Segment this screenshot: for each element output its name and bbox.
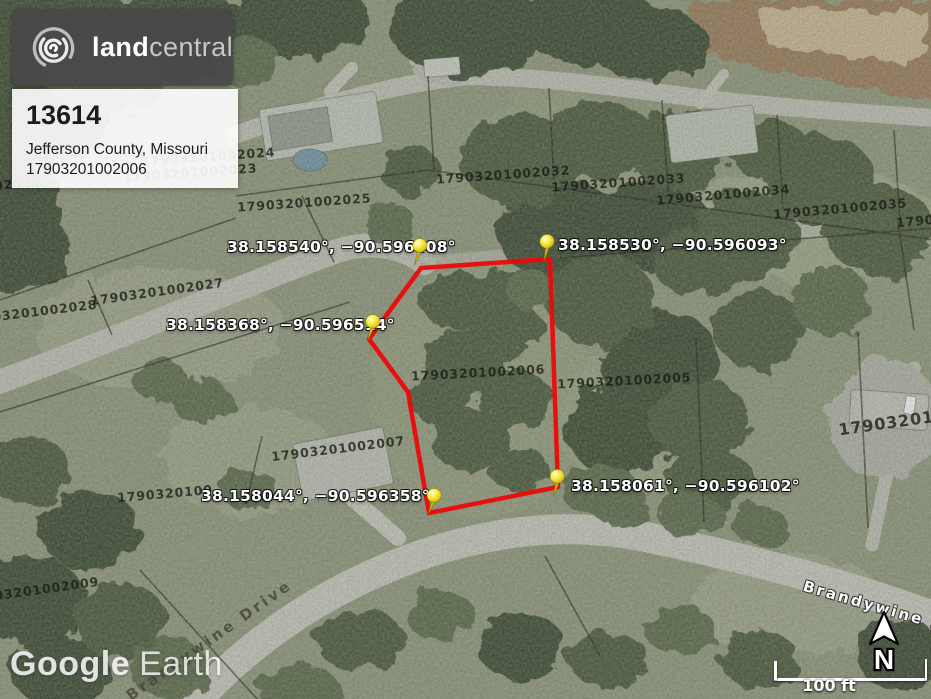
google-earth-view: 17903201002032 17903201002033 1790320100… <box>0 0 931 699</box>
watermark-earth: Earth <box>139 645 223 683</box>
pin-coordinate-label: 38.158061°, −90.596102° <box>571 477 800 495</box>
logo-wordmark: landcentral <box>92 32 233 63</box>
watermark-google: Google <box>10 645 130 683</box>
listing-id: 13614 <box>26 100 224 131</box>
pushpin-icon[interactable] <box>419 486 447 517</box>
pushpin-icon[interactable] <box>358 312 387 344</box>
scale-bar-right-tick <box>925 659 928 680</box>
logo-word-central: central <box>149 32 233 62</box>
listing-location: Jefferson County, Missouri <box>26 140 224 160</box>
pushpin-icon[interactable] <box>542 466 573 500</box>
google-earth-watermark: GoogleEarth <box>10 645 223 684</box>
listing-apn: 17903201002006 <box>26 160 224 180</box>
pin-coordinate-label: 38.158530°, −90.596093° <box>558 236 787 254</box>
landcentral-logo-box: landcentral <box>12 9 233 86</box>
north-compass[interactable]: N <box>856 603 914 675</box>
scale-bar-left-tick <box>774 661 777 680</box>
listing-info-box: 13614 Jefferson County, Missouri 1790320… <box>12 89 238 188</box>
logo-word-land: land <box>92 32 149 62</box>
north-arrow-icon <box>870 612 898 644</box>
pin-coordinate-label: 38.158044°, −90.596358° <box>201 487 430 505</box>
swirl-logo-icon <box>28 22 79 74</box>
pushpin-icon[interactable] <box>405 236 434 268</box>
north-label: N <box>874 644 894 675</box>
scale-label: 100 ft <box>794 676 864 695</box>
